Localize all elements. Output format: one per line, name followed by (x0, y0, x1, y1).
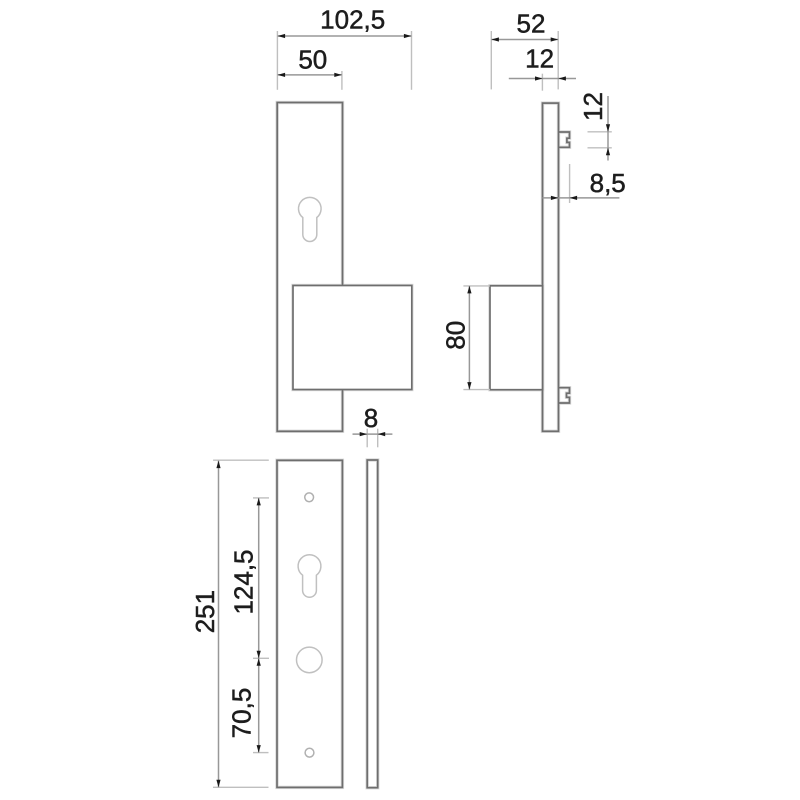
svg-text:251: 251 (190, 590, 220, 633)
svg-text:124,5: 124,5 (229, 549, 259, 614)
svg-text:52: 52 (517, 8, 546, 38)
svg-text:8,5: 8,5 (590, 168, 626, 198)
svg-text:12: 12 (578, 92, 608, 121)
svg-text:102,5: 102,5 (320, 5, 385, 35)
svg-text:8: 8 (364, 403, 378, 433)
svg-text:50: 50 (298, 44, 327, 74)
svg-text:70,5: 70,5 (227, 688, 257, 739)
svg-text:80: 80 (441, 321, 471, 350)
svg-text:12: 12 (525, 44, 554, 74)
